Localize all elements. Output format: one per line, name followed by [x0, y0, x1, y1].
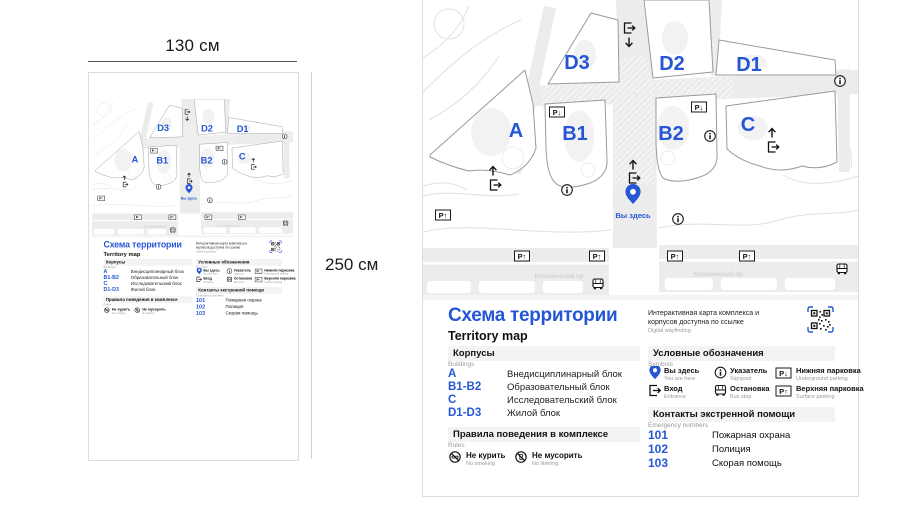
section-rules-subheader: Rules — [448, 442, 465, 449]
parking-up-icon — [169, 215, 176, 220]
emergency-name: Скорая помощь — [226, 311, 258, 316]
street-name-label: Коломенский пр. — [217, 224, 240, 228]
you-are-here-label: Вы здесь — [615, 211, 651, 220]
section-emergency-header: Контакты экстренной помощи — [196, 287, 282, 294]
parking-down-icon — [216, 146, 223, 151]
building-label-c: C — [239, 152, 246, 162]
info-icon — [705, 131, 716, 142]
parking-down-icon — [692, 102, 707, 112]
symbol-item: Вход Entrance — [664, 384, 686, 400]
no-littering-icon — [135, 307, 141, 313]
building-label-c: C — [741, 114, 755, 136]
building-list-name: Образовательный блок — [131, 275, 178, 280]
building-list-code: A — [104, 269, 108, 275]
qr-code — [269, 240, 281, 252]
parking-up-icon — [740, 251, 755, 261]
symbol-item: Нижняя парковка Underground parking — [264, 268, 294, 275]
entrance-icon — [491, 180, 501, 190]
parking-up-icon — [238, 215, 245, 220]
info-icon — [714, 366, 727, 379]
mini-sign-content: P↓ P↑ — [92, 99, 293, 328]
emergency-number: 103 — [648, 456, 668, 470]
info-icon — [835, 76, 846, 87]
emergency-name: Пожарная охрана — [226, 298, 262, 303]
symbol-item: Указатель Signpost — [234, 268, 251, 275]
building-label-a: A — [132, 154, 139, 164]
pin-icon — [649, 366, 661, 380]
you-are-here-label: Вы здесь — [181, 197, 197, 201]
parking-up-icon — [98, 196, 105, 201]
street-bands — [423, 245, 858, 300]
symbol-item: Верхняя парковка Surface parking — [264, 276, 295, 283]
qr-note-ru: Интерактивная карта комплекса и корпусов… — [648, 309, 788, 327]
parking-up-icon — [668, 251, 683, 261]
parking-down-icon — [775, 367, 792, 379]
street-name-label: Коломенский пр. — [694, 270, 745, 278]
building-d1-plot — [716, 40, 836, 75]
rule-item: Не мусорить No littering — [532, 451, 583, 467]
qr-note-en: Digital wayfinding — [196, 251, 216, 254]
rule-item: Не мусорить No littering — [142, 307, 165, 314]
building-list-code: D1-D3 — [448, 407, 481, 419]
parking-up-icon — [515, 251, 530, 261]
qr-code — [807, 306, 834, 333]
width-dimension-line — [88, 61, 297, 62]
info-icon — [673, 214, 684, 225]
sign-mockup-small: P↓ P↑ — [88, 72, 299, 461]
info-icon — [222, 159, 227, 164]
building-label-b2: B2 — [201, 156, 213, 166]
sign-title-ru: Схема территории — [104, 240, 182, 250]
street-bands — [92, 212, 293, 237]
parking-up-icon — [436, 210, 451, 220]
street-name-label: Коломенский пр. — [144, 224, 167, 228]
rule-item: Не курить No smoking — [466, 451, 505, 467]
bus-icon — [226, 276, 232, 282]
building-list-name: Жилой блок — [507, 408, 560, 419]
parking-up-icon — [255, 277, 263, 283]
info-icon — [562, 185, 573, 196]
height-dimension-line — [311, 72, 312, 459]
building-list-code: D1-D3 — [104, 287, 119, 293]
no-littering-icon — [515, 451, 527, 463]
no-smoking-icon — [449, 451, 461, 463]
building-list-code: A — [448, 368, 456, 380]
section-buildings-header: Корпусы — [448, 346, 640, 361]
entrance-icon — [196, 276, 202, 282]
building-label-d3: D3 — [157, 123, 169, 133]
building-list-name: Внедисциплинарный блок — [131, 269, 184, 274]
symbol-item: Остановка Bus stop — [234, 276, 252, 283]
building-list-code: C — [448, 394, 456, 406]
symbol-item: Верхняя парковка Surface parking — [796, 384, 864, 400]
design-canvas: 130 см 250 см P↓ P↑ — [0, 0, 900, 506]
emergency-name: Полиция — [712, 444, 751, 455]
sign-title-ru: Схема территории — [448, 305, 617, 327]
section-symbols-header: Условные обозначения — [648, 346, 835, 361]
building-list-name: Жилой блок — [131, 287, 156, 292]
sign-title-en: Territory map — [104, 251, 141, 257]
section-emergency-header: Контакты экстренной помощи — [648, 407, 835, 422]
emergency-name: Пожарная охрана — [712, 430, 790, 441]
parking-up-icon — [775, 385, 792, 397]
qr-note-ru: Интерактивная карта комплекса и корпусов… — [196, 242, 261, 250]
building-label-a: A — [509, 120, 523, 142]
rule-item: Не курить No smoking — [112, 307, 130, 314]
height-dimension-label: 250 см — [325, 255, 378, 275]
street-name-label: Коломенский пр. — [535, 272, 586, 280]
parking-up-icon — [134, 215, 141, 220]
building-label-d1: D1 — [736, 54, 762, 76]
section-rules-header: Правила поведения в комплексе — [104, 296, 193, 303]
emergency-number: 103 — [196, 310, 205, 316]
section-buildings-subheader: Buildings — [448, 361, 474, 368]
emergency-number: 101 — [648, 428, 668, 442]
building-list-name: Исследовательский блок — [131, 281, 182, 286]
building-label-d2: D2 — [201, 123, 213, 133]
sign-detail-large: P↓ P↑ — [422, 0, 859, 497]
section-rules-header: Правила поведения в комплексе — [448, 427, 640, 442]
symbol-item: Указатель Signpost — [730, 366, 767, 382]
building-label-d3: D3 — [564, 52, 590, 74]
building-list-name: Исследовательский блок — [507, 395, 617, 406]
building-label-b2: B2 — [658, 123, 684, 145]
section-rules-subheader: Rules — [104, 303, 112, 306]
parking-down-icon — [255, 269, 263, 275]
bus-stop-icon — [837, 264, 847, 274]
parking-up-icon — [205, 215, 212, 220]
parking-down-icon — [150, 148, 157, 153]
bus-stop-icon — [283, 221, 288, 226]
symbol-item: Вы здесь You are here — [664, 366, 699, 382]
info-icon — [282, 134, 287, 139]
emergency-name: Полиция — [226, 304, 244, 309]
building-label-d2: D2 — [659, 53, 685, 75]
entrance-icon — [123, 182, 128, 187]
no-smoking-icon — [104, 307, 110, 313]
symbol-item: Вы здесь You are here — [203, 268, 219, 275]
section-buildings-header: Корпусы — [104, 259, 193, 266]
emergency-number: 102 — [648, 442, 668, 456]
sign-title-en: Territory map — [448, 329, 528, 343]
bus-stop-icon — [593, 279, 603, 289]
building-list-code: B1-B2 — [104, 275, 119, 281]
building-list-name: Внедисциплинарный блок — [507, 369, 622, 380]
symbol-item: Остановка Bus stop — [730, 384, 770, 400]
entrance-icon — [648, 384, 661, 397]
sign-legend: Схема территории Territory map Интеракти… — [92, 238, 293, 329]
bus-icon — [714, 384, 727, 397]
symbol-item: Вход Entrance — [203, 276, 213, 283]
building-d1-plot — [227, 117, 282, 133]
section-symbols-header: Условные обозначения — [196, 259, 282, 266]
bus-stop-icon — [171, 228, 176, 233]
width-dimension-label: 130 см — [88, 36, 297, 56]
building-label-b1: B1 — [156, 156, 168, 166]
parking-up-icon — [590, 251, 605, 261]
sign-legend: Схема территории Territory map Интеракти… — [423, 300, 858, 496]
info-icon — [226, 268, 232, 274]
building-list-code: B1-B2 — [448, 381, 481, 393]
emergency-name: Скорая помощь — [712, 458, 782, 469]
territory-map: P↓ P↑ — [92, 99, 293, 238]
qr-note-en: Digital wayfinding — [648, 328, 691, 334]
pin-icon — [196, 268, 202, 274]
building-list-code: C — [104, 281, 108, 287]
parking-down-icon — [550, 107, 565, 117]
info-icon — [207, 198, 212, 203]
info-icon — [156, 184, 161, 189]
building-label-b1: B1 — [562, 123, 588, 145]
building-list-name: Образовательный блок — [507, 382, 610, 393]
symbol-item: Нижняя парковка Underground parking — [796, 366, 861, 382]
territory-map: P↓ P↑ — [423, 0, 858, 300]
building-label-d1: D1 — [237, 124, 249, 134]
